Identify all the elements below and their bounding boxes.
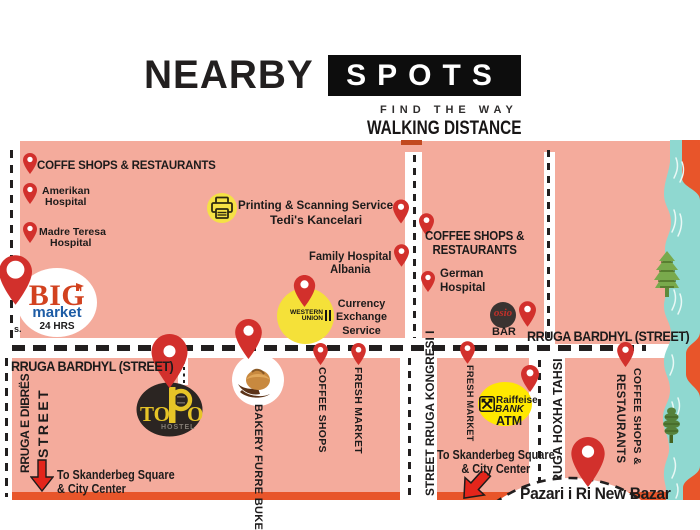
svg-text:TO: TO: [140, 402, 170, 426]
svg-text:O: O: [187, 402, 203, 426]
svg-text:HOSTEL: HOSTEL: [161, 424, 195, 431]
